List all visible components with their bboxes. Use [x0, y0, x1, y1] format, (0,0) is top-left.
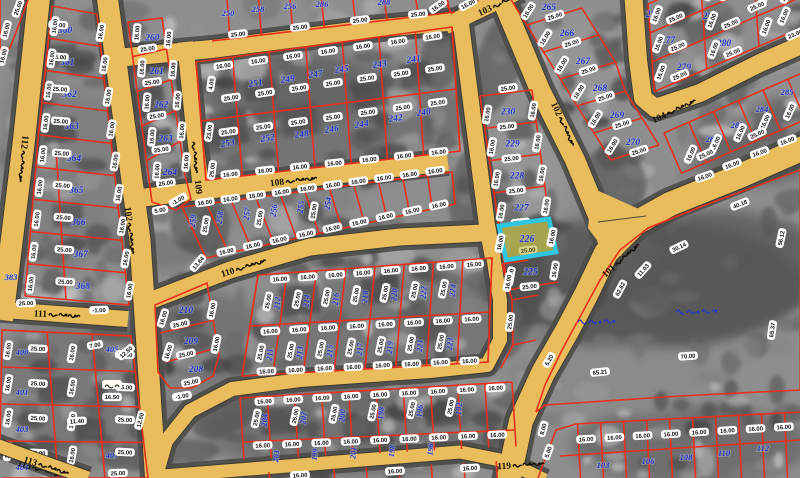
svg-text:16.00: 16.00	[430, 389, 446, 396]
svg-text:109: 109	[192, 179, 203, 194]
svg-text:203: 203	[271, 450, 281, 464]
svg-text:216: 216	[330, 291, 341, 306]
svg-text:262: 262	[153, 101, 169, 111]
svg-text:16.00: 16.00	[320, 325, 336, 332]
svg-text:25.00: 25.00	[30, 416, 46, 423]
svg-text:220: 220	[388, 287, 399, 302]
svg-text:112: 112	[18, 135, 29, 150]
svg-text:400: 400	[15, 347, 30, 357]
svg-text:218: 218	[359, 289, 370, 304]
svg-text:16.00: 16.00	[692, 430, 708, 437]
svg-text:16.00: 16.00	[439, 264, 455, 271]
svg-text:16.00: 16.00	[344, 394, 360, 401]
svg-text:25.00: 25.00	[56, 215, 72, 222]
svg-text:244: 244	[353, 119, 370, 131]
svg-text:25.00: 25.00	[58, 279, 74, 286]
svg-text:249: 249	[279, 74, 296, 86]
svg-text:16.00: 16.00	[404, 362, 420, 369]
svg-text:253: 253	[219, 138, 236, 150]
svg-text:16.00: 16.00	[375, 363, 391, 370]
svg-text:212: 212	[271, 296, 282, 311]
svg-text:214: 214	[301, 294, 312, 309]
svg-text:268: 268	[592, 84, 608, 94]
svg-text:251: 251	[247, 78, 263, 90]
svg-text:16.00: 16.00	[383, 268, 399, 275]
svg-text:240: 240	[415, 107, 432, 119]
svg-text:16.00: 16.00	[317, 366, 333, 373]
svg-text:16.00: 16.00	[402, 437, 418, 444]
svg-text:16.50: 16.50	[105, 395, 120, 401]
svg-text:241: 241	[405, 54, 421, 66]
svg-text:215: 215	[324, 343, 335, 358]
svg-text:16.00: 16.00	[288, 368, 304, 375]
svg-text:252: 252	[259, 133, 276, 145]
svg-text:199: 199	[310, 448, 320, 461]
svg-text:16.00: 16.00	[373, 438, 389, 445]
svg-text:16.00: 16.00	[401, 391, 417, 398]
svg-text:111: 111	[33, 309, 47, 320]
svg-text:211: 211	[264, 348, 275, 362]
svg-text:225: 225	[522, 267, 538, 277]
svg-text:258: 258	[214, 210, 226, 226]
svg-text:119: 119	[497, 461, 512, 472]
svg-text:242: 242	[387, 113, 404, 125]
svg-text:108: 108	[680, 452, 694, 462]
svg-text:368: 368	[75, 282, 91, 292]
svg-text:16.00: 16.00	[490, 433, 506, 440]
svg-text:16.00: 16.00	[407, 320, 423, 327]
svg-text:222: 222	[418, 285, 429, 300]
svg-text:198: 198	[387, 445, 397, 458]
svg-text:257: 257	[241, 206, 253, 222]
svg-text:270: 270	[625, 138, 641, 148]
svg-text:213: 213	[294, 345, 305, 360]
svg-text:108: 108	[269, 178, 285, 190]
svg-text:16.00: 16.00	[314, 441, 330, 448]
svg-text:25.00: 25.00	[53, 119, 69, 126]
svg-text:16.00: 16.00	[263, 329, 279, 336]
svg-text:16.00: 16.00	[285, 442, 301, 449]
svg-text:258: 258	[251, 4, 266, 14]
svg-text:260: 260	[144, 34, 160, 44]
svg-text:16.00: 16.00	[433, 360, 449, 367]
svg-text:367: 367	[73, 250, 90, 260]
svg-text:16.00: 16.00	[292, 327, 308, 334]
svg-text:25.00: 25.00	[55, 183, 71, 190]
svg-text:-1.00: -1.00	[92, 308, 106, 314]
svg-text:70.00: 70.00	[681, 354, 697, 361]
svg-text:16.00: 16.00	[459, 387, 475, 394]
svg-text:106: 106	[642, 456, 656, 466]
svg-text:16.00: 16.00	[328, 272, 344, 279]
svg-text:25.00: 25.00	[117, 417, 133, 424]
svg-text:103: 103	[597, 460, 611, 470]
svg-text:259: 259	[187, 213, 199, 229]
svg-text:229: 229	[504, 139, 520, 149]
svg-text:266: 266	[559, 29, 575, 39]
svg-text:16.00: 16.00	[663, 432, 679, 439]
svg-text:248: 248	[293, 129, 310, 141]
svg-text:16.00: 16.00	[388, 469, 404, 476]
svg-text:16.00: 16.00	[720, 428, 736, 435]
svg-text:16.00: 16.00	[462, 359, 478, 366]
svg-text:16.00: 16.00	[315, 396, 331, 403]
svg-text:217: 217	[354, 342, 365, 357]
svg-text:16.00: 16.00	[411, 266, 427, 273]
svg-text:16.00: 16.00	[272, 276, 288, 283]
svg-text:16.00: 16.00	[431, 435, 447, 442]
svg-text:16.00: 16.00	[488, 386, 504, 393]
svg-text:288: 288	[377, 0, 392, 7]
svg-text:25.00: 25.00	[19, 301, 35, 308]
svg-text:228: 228	[509, 171, 525, 181]
svg-text:25.00: 25.00	[30, 381, 46, 388]
svg-text:221: 221	[414, 339, 425, 354]
svg-text:219: 219	[384, 340, 395, 355]
svg-text:16.00: 16.00	[579, 437, 595, 444]
svg-text:16.00: 16.00	[349, 324, 365, 331]
svg-text:286: 286	[315, 0, 330, 9]
svg-text:224: 224	[447, 284, 458, 299]
svg-text:261: 261	[149, 67, 164, 77]
svg-text:16.00: 16.00	[346, 365, 362, 372]
svg-text:269: 269	[609, 111, 625, 121]
svg-text:16.00: 16.00	[748, 426, 764, 433]
svg-text:16.00: 16.00	[635, 433, 651, 440]
svg-text:112: 112	[757, 443, 770, 453]
svg-text:208: 208	[188, 365, 204, 375]
svg-text:16.00: 16.00	[607, 435, 623, 442]
svg-text:16.00: 16.00	[378, 322, 394, 329]
svg-text:223: 223	[444, 336, 455, 351]
svg-text:196: 196	[426, 443, 436, 456]
svg-text:209: 209	[183, 337, 199, 347]
svg-text:264: 264	[162, 168, 178, 178]
svg-text:25.00: 25.00	[117, 450, 133, 457]
svg-text:25.00: 25.00	[111, 471, 127, 478]
svg-text:16.00: 16.00	[464, 317, 480, 324]
svg-text:25.00: 25.00	[57, 247, 73, 254]
svg-text:16.00: 16.00	[356, 270, 372, 277]
svg-text:16.00: 16.00	[373, 392, 389, 399]
svg-text:256: 256	[268, 203, 280, 219]
svg-text:263: 263	[157, 134, 173, 144]
svg-text:403: 403	[15, 424, 30, 434]
svg-text:401: 401	[15, 387, 29, 397]
svg-text:16.00: 16.00	[286, 397, 302, 404]
svg-text:267: 267	[575, 57, 592, 67]
svg-text:227: 227	[513, 203, 530, 213]
svg-text:226: 226	[519, 234, 535, 245]
svg-text:16.00: 16.00	[343, 439, 359, 446]
svg-text:25.00: 25.00	[54, 151, 70, 158]
svg-text:16.00: 16.00	[255, 443, 271, 450]
svg-text:210: 210	[178, 306, 194, 316]
svg-text:11.40: 11.40	[70, 419, 85, 426]
svg-text:256: 256	[283, 1, 298, 11]
svg-text:25.00: 25.00	[52, 87, 68, 94]
svg-text:243: 243	[371, 59, 388, 71]
svg-text:285: 285	[780, 87, 795, 97]
svg-text:16.00: 16.00	[435, 318, 451, 325]
svg-text:16.00: 16.00	[467, 262, 483, 269]
svg-text:16.00: 16.00	[257, 399, 273, 406]
svg-text:250: 250	[221, 8, 236, 18]
svg-text:16.00: 16.00	[461, 434, 477, 441]
svg-text:16.00: 16.00	[776, 425, 792, 432]
svg-text:254: 254	[322, 196, 334, 211]
svg-text:230: 230	[500, 107, 516, 117]
svg-text:265: 265	[541, 3, 557, 13]
svg-text:16.00: 16.00	[300, 274, 316, 281]
svg-text:16.00: 16.00	[259, 369, 275, 376]
svg-text:245: 245	[333, 64, 350, 76]
svg-text:16.00: 16.00	[293, 473, 309, 478]
svg-text:102: 102	[122, 206, 134, 222]
svg-text:110: 110	[718, 448, 731, 458]
svg-text:383: 383	[4, 272, 19, 282]
svg-text:255: 255	[295, 199, 307, 215]
svg-text:201: 201	[348, 446, 358, 460]
svg-text:16.00: 16.00	[463, 466, 479, 473]
svg-text:246: 246	[323, 124, 340, 136]
svg-text:25.00: 25.00	[30, 346, 46, 353]
